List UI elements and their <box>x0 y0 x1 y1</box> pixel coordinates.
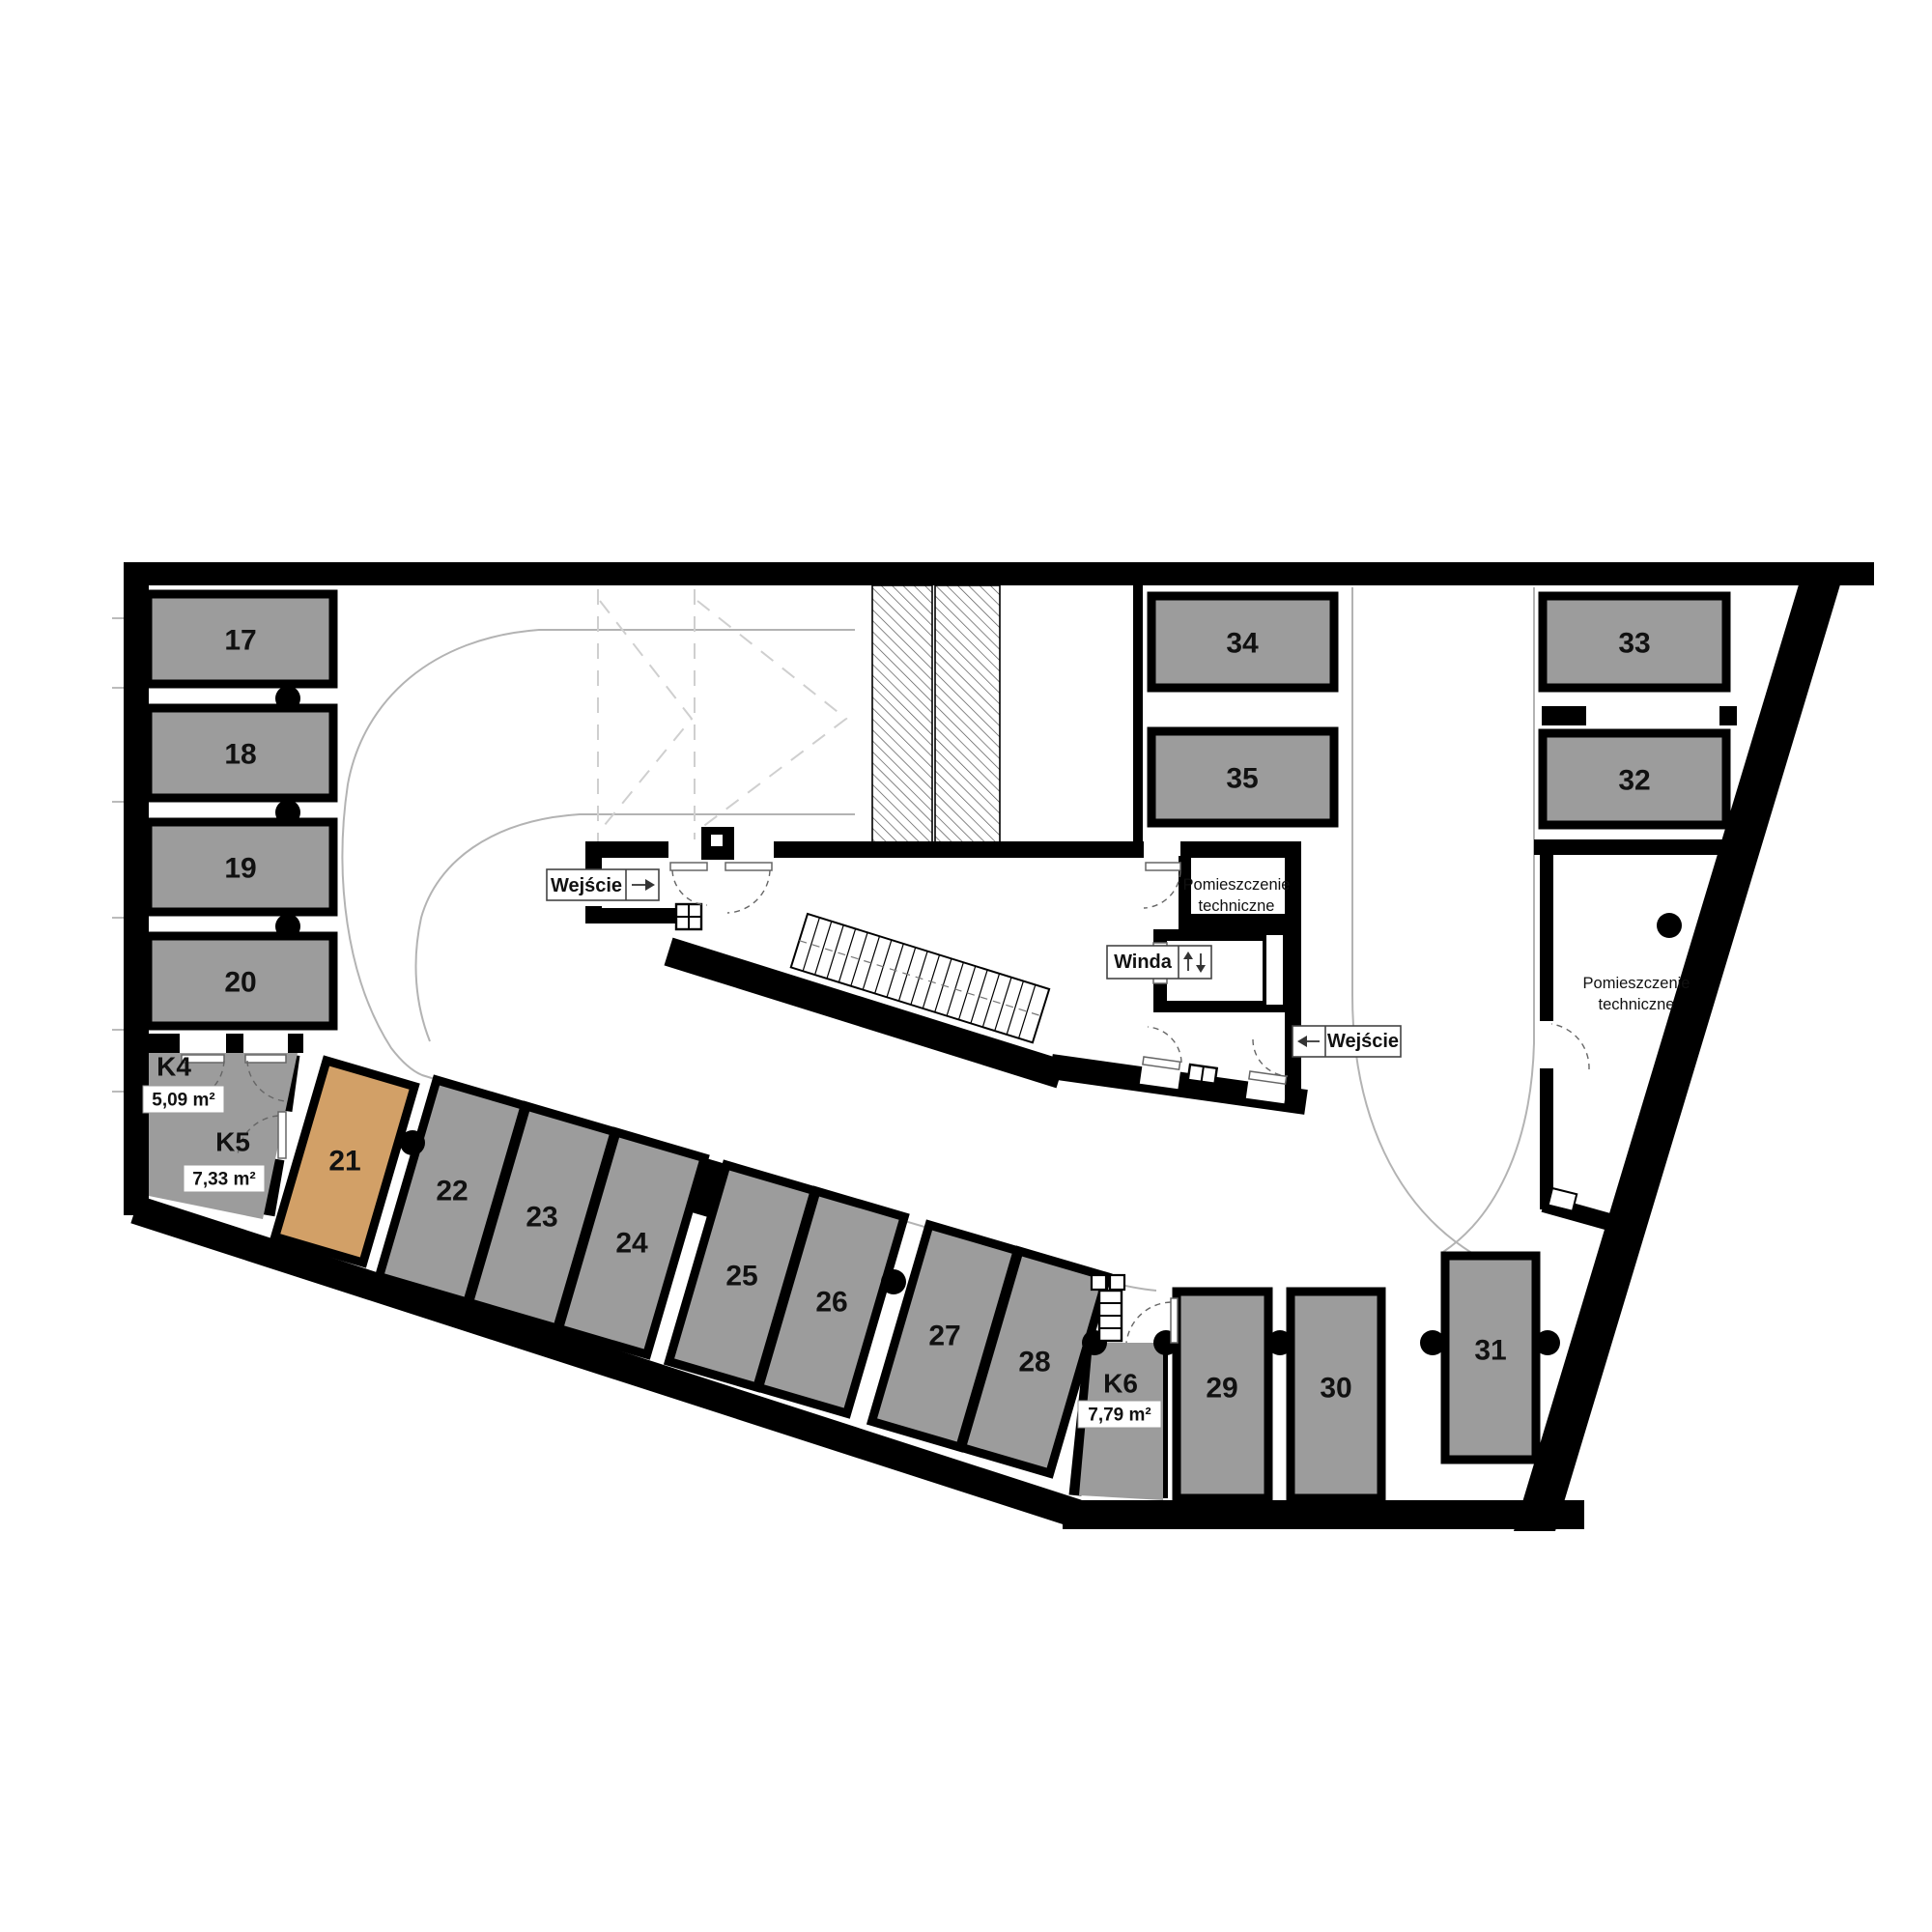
storage-k4-label: K4 <box>156 1052 191 1082</box>
entrance-right-label: Wejście <box>1327 1031 1399 1052</box>
wall-top <box>124 562 1874 585</box>
garage-floor-plan: 17 18 19 20 21 22 23 24 25 26 27 28 29 3… <box>0 0 1932 1932</box>
tech-room-right-line1: Pomieszczenie <box>1583 975 1690 992</box>
storage-k6-area: 7,79 m² <box>1088 1406 1151 1426</box>
entrance-left-label: Wejście <box>551 875 622 896</box>
parking-space-25-label: 25 <box>725 1261 757 1293</box>
entrance-sign-right: Wejście <box>1293 1026 1401 1057</box>
ramp-hatched-walls <box>872 585 1000 844</box>
parking-space-31-label: 31 <box>1474 1335 1506 1367</box>
parking-space-24-label: 24 <box>615 1228 648 1260</box>
tech-room-right-line2: techniczne <box>1599 996 1675 1013</box>
parking-space-34-label: 34 <box>1226 628 1259 660</box>
parking-space-21-label: 21 <box>328 1146 360 1178</box>
entrance-sign-left: Wejście <box>547 869 659 900</box>
storage-k5-area: 7,33 m² <box>192 1170 255 1190</box>
elevator-sign: Winda <box>1107 946 1211 979</box>
parking-space-30-label: 30 <box>1320 1373 1351 1405</box>
parking-space-33-label: 33 <box>1618 628 1650 660</box>
tech-room-core-line2: techniczne <box>1199 897 1275 915</box>
parking-space-35-label: 35 <box>1226 763 1258 795</box>
storage-k6-label: K6 <box>1103 1369 1138 1399</box>
parking-space-23-label: 23 <box>526 1202 557 1234</box>
parking-space-26-label: 26 <box>815 1287 847 1319</box>
parking-space-18-label: 18 <box>224 739 256 771</box>
parking-space-22-label: 22 <box>436 1176 468 1207</box>
parking-space-32-label: 32 <box>1618 765 1650 797</box>
storage-k5-label: K5 <box>215 1127 250 1157</box>
parking-space-19-label: 19 <box>224 853 256 885</box>
parking-space-29-label: 29 <box>1206 1373 1237 1405</box>
tech-room-core-line1: Pomieszczenie <box>1183 876 1291 894</box>
parking-space-28-label: 28 <box>1018 1347 1050 1378</box>
parking-space-27-label: 27 <box>928 1321 960 1352</box>
floor-plan-page: 17 18 19 20 21 22 23 24 25 26 27 28 29 3… <box>0 0 1932 1932</box>
elevator-label: Winda <box>1114 952 1173 973</box>
parking-space-20-label: 20 <box>224 967 256 999</box>
storage-k4-area: 5,09 m² <box>152 1091 214 1111</box>
parking-space-17-label: 17 <box>224 625 256 657</box>
